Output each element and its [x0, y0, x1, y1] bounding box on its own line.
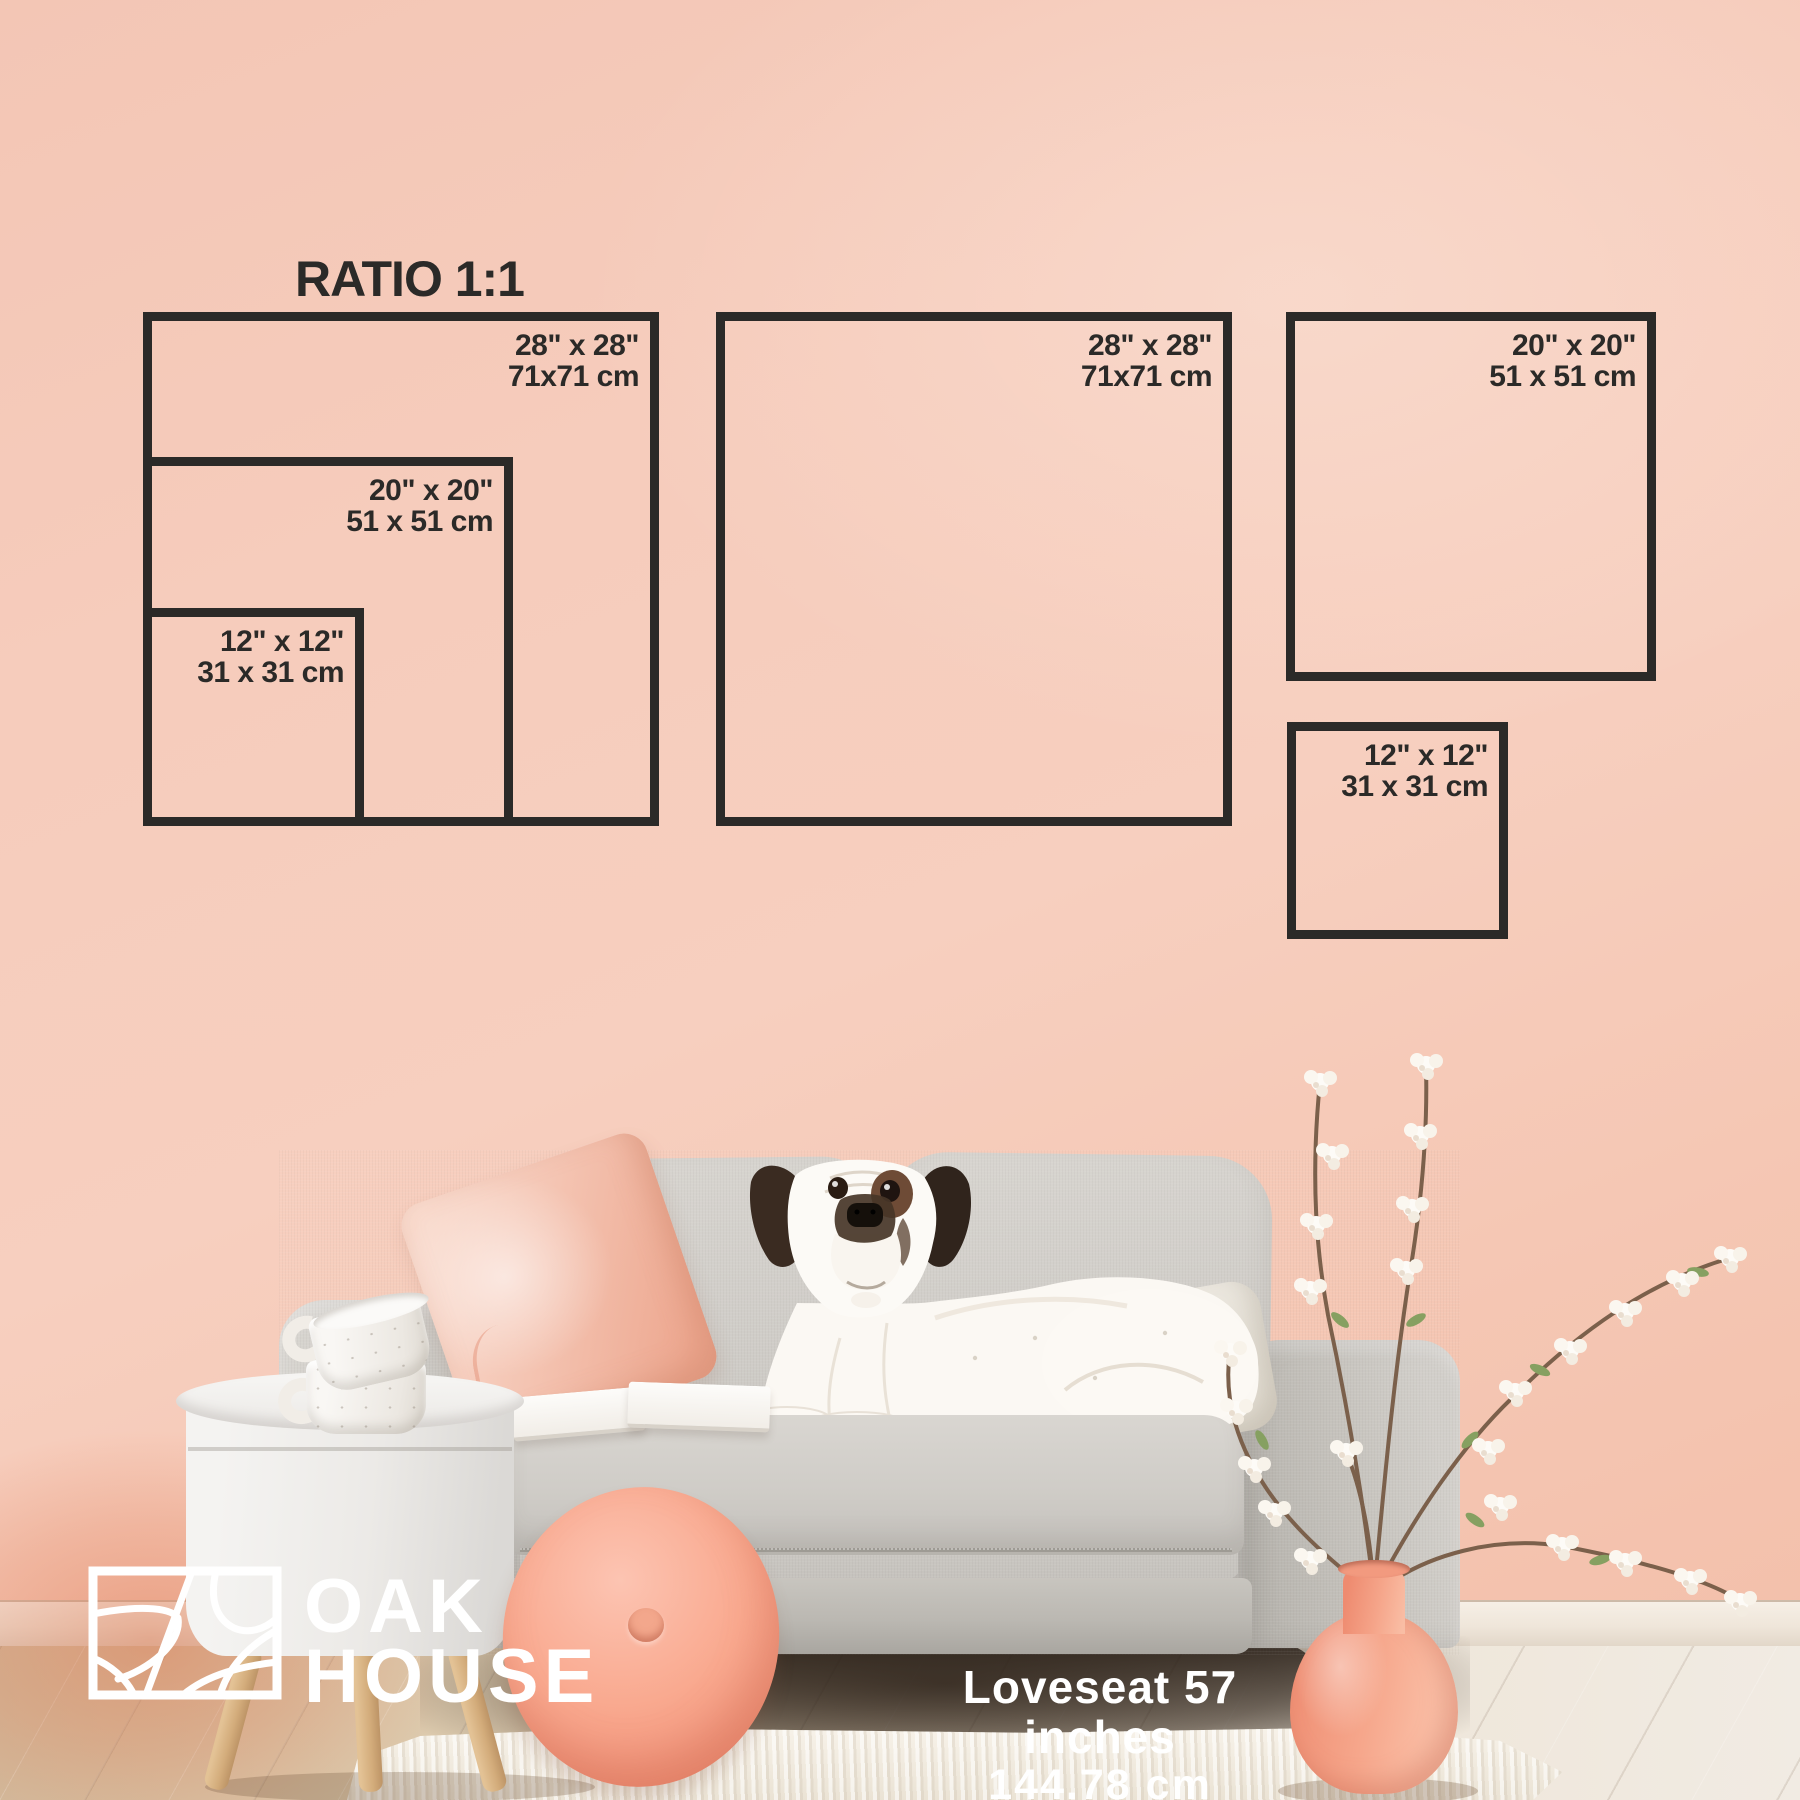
- pouf-button: [628, 1608, 664, 1642]
- size-label: 28" x 28"71x71 cm: [508, 330, 639, 392]
- size-square-12-right: 12" x 12"31 x 31 cm: [1287, 722, 1508, 939]
- brand-name: OAK HOUSE: [304, 1572, 599, 1712]
- loveseat-dimension-caption: Loveseat 57 inches 144.78 cm: [900, 1662, 1300, 1800]
- pink-vase-neck: [1343, 1570, 1405, 1634]
- size-label: 12" x 12"31 x 31 cm: [1341, 740, 1488, 802]
- size-square-12-left: 12" x 12"31 x 31 cm: [143, 608, 364, 826]
- open-book: [627, 1382, 771, 1433]
- caption-inches: Loveseat 57 inches: [900, 1662, 1300, 1762]
- side-table-lid-seam: [188, 1447, 512, 1451]
- size-square-28-center: 28" x 28"71x71 cm: [716, 312, 1232, 826]
- brand-line-1: OAK: [304, 1572, 599, 1642]
- size-guide-poster: RATIO 1:1 28" x 28"71x71 cm 20" x 20"51 …: [0, 0, 1800, 1800]
- size-label: 12" x 12"31 x 31 cm: [197, 626, 344, 688]
- pink-vase: [1290, 1612, 1458, 1794]
- size-label: 28" x 28"71x71 cm: [1081, 330, 1212, 392]
- oak-house-logo-icon: [88, 1566, 282, 1700]
- ratio-title: RATIO 1:1: [295, 250, 524, 308]
- size-label: 20" x 20"51 x 51 cm: [346, 475, 493, 537]
- size-square-20-right: 20" x 20"51 x 51 cm: [1286, 312, 1656, 681]
- brand-line-2: HOUSE: [304, 1642, 599, 1712]
- table-shadow: [205, 1772, 595, 1800]
- pink-vase-rim: [1338, 1560, 1410, 1578]
- size-label: 20" x 20"51 x 51 cm: [1489, 330, 1636, 392]
- blossom-branches: [1170, 1020, 1800, 1660]
- caption-cm: 144.78 cm: [900, 1762, 1300, 1800]
